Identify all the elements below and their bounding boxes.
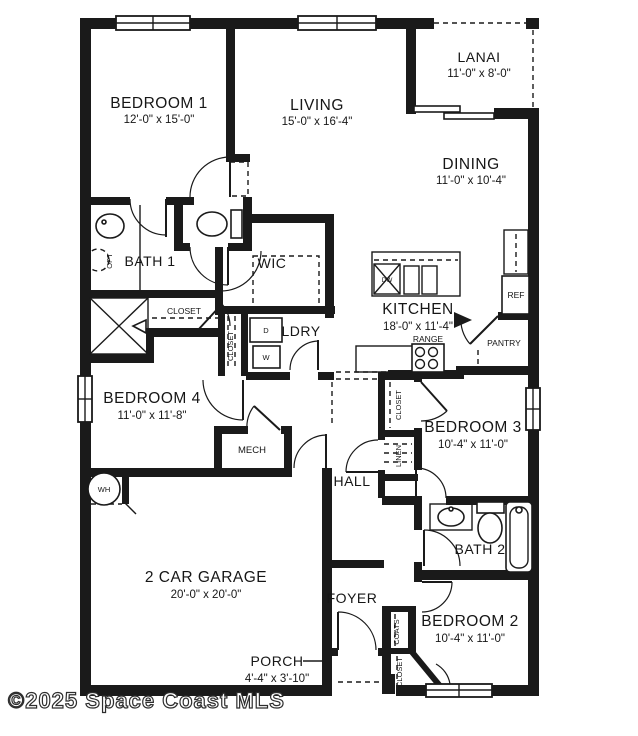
floor-plan-page: BEDROOM 1 12'-0" x 15'-0" LIVING 15'-0" … xyxy=(0,0,638,736)
faucet-icon xyxy=(449,507,453,511)
room-dims-bedroom4: 11'-0" x 11'-8" xyxy=(117,410,186,422)
room-dims-dining: 11'-0" x 10'-4" xyxy=(436,175,506,187)
sink-icon xyxy=(96,214,124,238)
closet-label-bath1: CLOSET xyxy=(167,306,201,316)
door-swing-icon xyxy=(190,157,230,197)
door-swing-icon xyxy=(346,440,378,472)
door-swing-icon xyxy=(198,304,230,330)
window xyxy=(426,684,492,697)
door-swing-icon xyxy=(422,582,452,612)
opt-label: OPT xyxy=(105,253,114,269)
toilet-icon xyxy=(477,502,504,543)
room-label-living: LIVING xyxy=(290,97,344,114)
closet-label-bed2: CLOSET xyxy=(395,657,404,687)
room-dims-kitchen: 18'-0" x 11'-4" xyxy=(383,321,453,333)
window xyxy=(526,388,540,430)
room-label-garage: 2 CAR GARAGE xyxy=(145,569,267,586)
toilet-icon xyxy=(197,210,242,238)
dryer-label: D xyxy=(263,326,269,335)
door-swing-icon xyxy=(203,380,243,420)
room-dims-bedroom3: 10'-4" x 11'-0" xyxy=(438,439,508,451)
door-swing-icon xyxy=(130,199,166,237)
window xyxy=(78,376,92,422)
door-swing-icon xyxy=(290,340,318,370)
washer-label: W xyxy=(262,353,270,362)
room-dims-bedroom1: 12'-0" x 15'-0" xyxy=(124,114,195,126)
closet-label-bed3: CLOSET xyxy=(394,390,403,420)
kitchen-counter xyxy=(356,346,414,372)
floor-plan: BEDROOM 1 12'-0" x 15'-0" LIVING 15'-0" … xyxy=(0,0,638,736)
front-door-swing-icon xyxy=(338,612,376,650)
room-label-pantry: PANTRY xyxy=(487,338,521,348)
room-label-bedroom4: BEDROOM 4 xyxy=(103,390,201,407)
door-swing-icon xyxy=(421,382,447,421)
room-label-porch: PORCH xyxy=(250,653,303,669)
closet-label-bed4: CLOSET xyxy=(226,331,235,361)
water-heater-label: WH xyxy=(98,485,111,494)
range-label: RANGE xyxy=(413,334,444,344)
room-label-mech: MECH xyxy=(238,445,266,456)
room-dims-lanai: 11'-0" x 8'-0" xyxy=(447,68,510,80)
room-label-dining: DINING xyxy=(442,156,499,173)
watermark: ©2025 Space Coast MLS xyxy=(8,688,285,713)
window xyxy=(298,16,376,30)
dishwasher-label: DW xyxy=(382,277,394,284)
room-label-hall: HALL xyxy=(333,473,370,489)
room-label-bedroom2: BEDROOM 2 xyxy=(421,613,519,630)
faucet-icon xyxy=(102,220,106,224)
sliding-glass-door xyxy=(414,106,494,119)
room-label-foyer: FOYER xyxy=(327,590,378,606)
room-dims-bedroom2: 10'-4" x 11'-0" xyxy=(435,633,505,645)
window xyxy=(116,16,190,30)
room-label-wic: WIC xyxy=(258,255,287,271)
door-swing-icon xyxy=(247,406,280,430)
bathtub-icon xyxy=(506,502,532,572)
linen-label: LINEN xyxy=(394,445,403,467)
closet-diagonal-wall xyxy=(412,652,440,686)
room-dims-porch: 4'-4" x 3'-10" xyxy=(245,673,309,685)
room-dims-garage: 20'-0" x 20'-0" xyxy=(171,589,242,601)
room-label-lanai: LANAI xyxy=(458,49,501,65)
range-icon xyxy=(412,344,444,372)
door-swing-icon xyxy=(294,434,326,468)
ref-label: REF xyxy=(508,290,525,300)
room-dims-living: 15'-0" x 16'-4" xyxy=(282,116,353,128)
room-label-kitchen: KITCHEN xyxy=(382,301,454,318)
room-label-bedroom3: BEDROOM 3 xyxy=(424,419,522,436)
kitchen-island xyxy=(372,252,460,296)
room-label-ldry: LDRY xyxy=(281,323,320,339)
coats-label: COATS xyxy=(392,619,401,644)
shower-icon xyxy=(90,298,148,354)
room-label-bath1: BATH 1 xyxy=(125,253,176,269)
room-label-bedroom1: BEDROOM 1 xyxy=(110,95,208,112)
door-swing-icon xyxy=(416,468,446,498)
room-label-bath2: BATH 2 xyxy=(455,541,506,557)
